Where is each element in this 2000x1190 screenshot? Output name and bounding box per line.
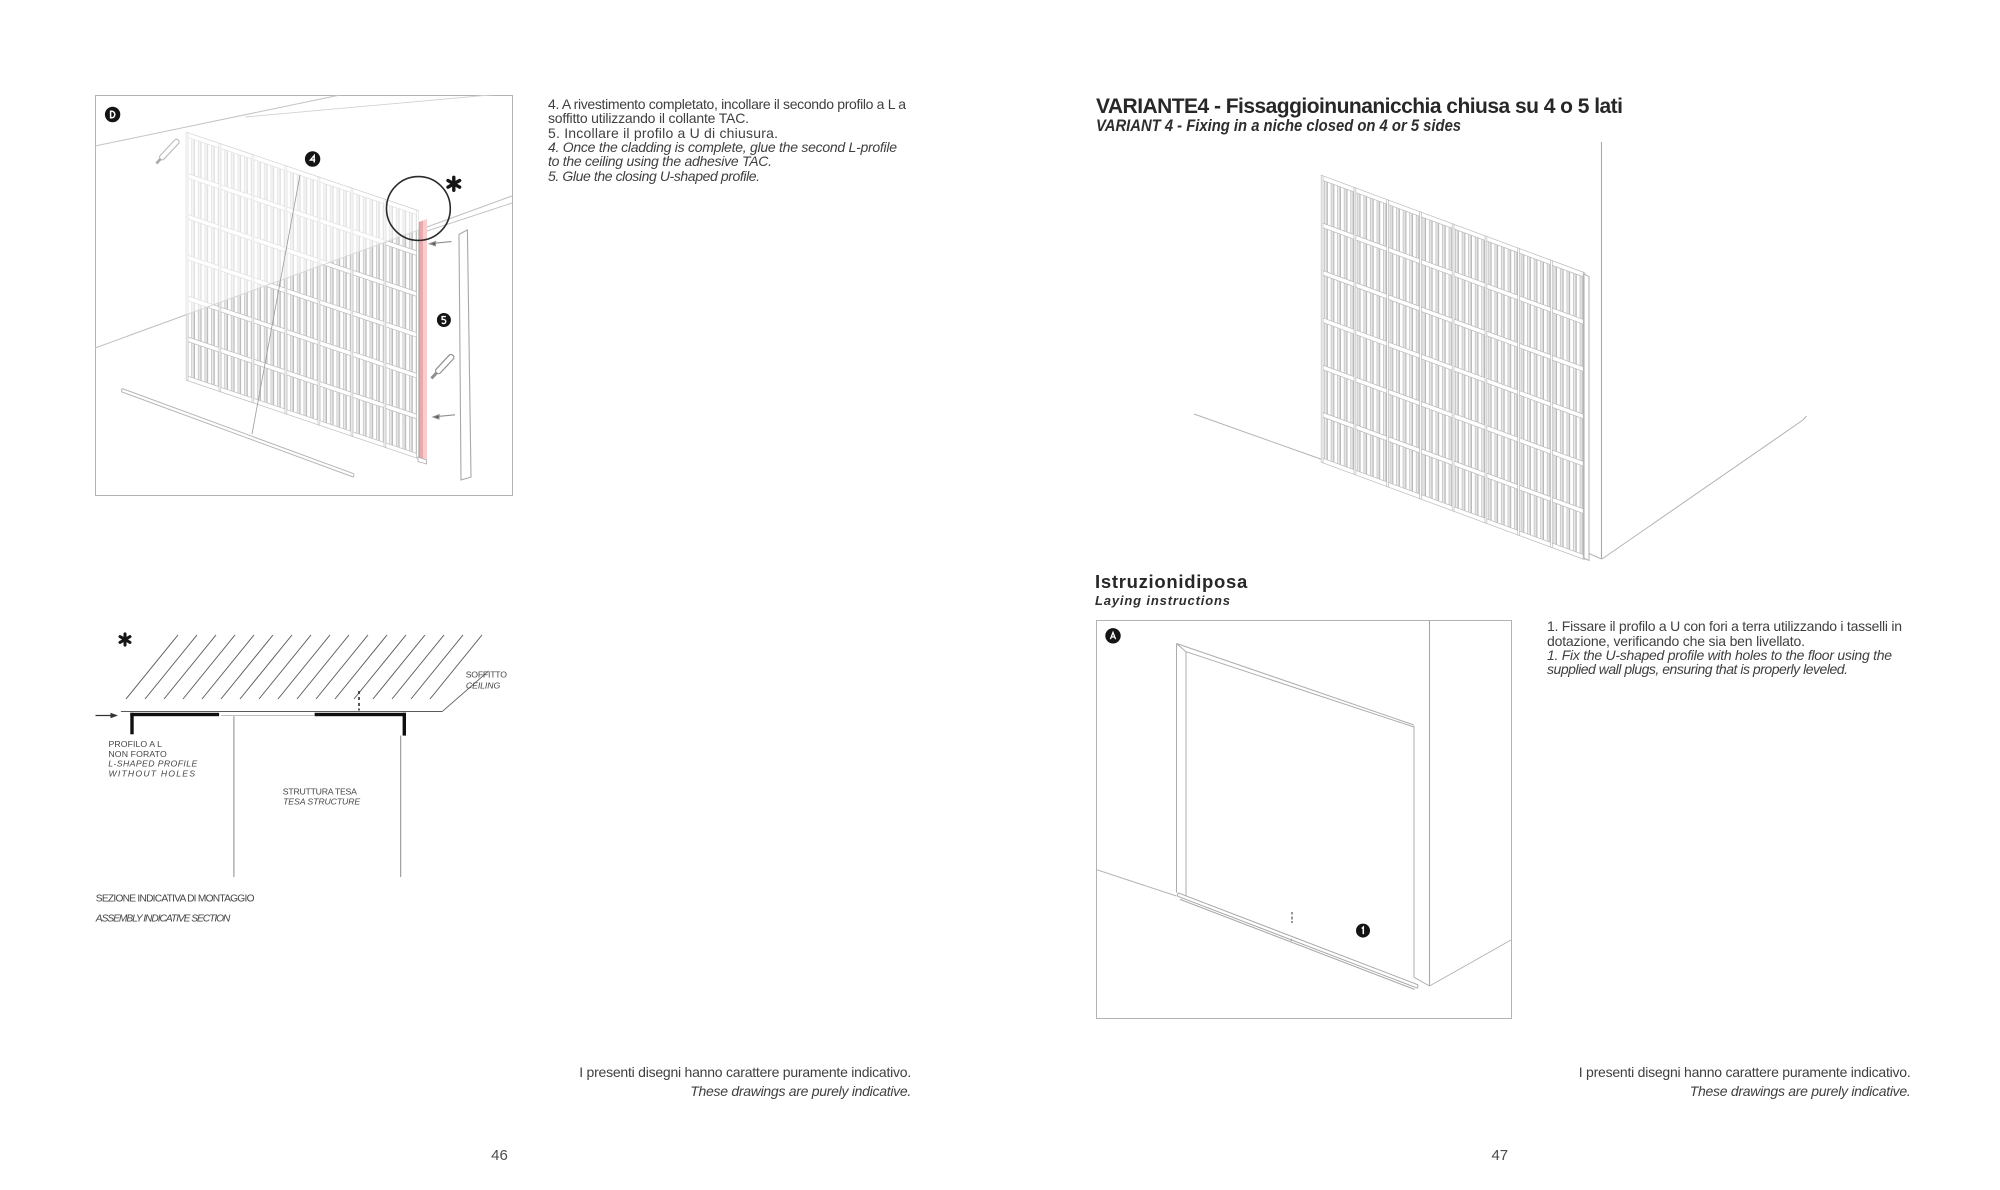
svg-text:CEILING: CEILING [466,680,501,690]
svg-text:ASSEMBLY INDICATIVE SECTION: ASSEMBLY INDICATIVE SECTION [95,914,231,925]
svg-text:L-SHAPED PROFILE: L-SHAPED PROFILE [108,758,197,768]
svg-text:SEZIONE INDICATIVA DI MONTAGGI: SEZIONE INDICATIVA DI MONTAGGIO [96,893,255,904]
svg-text:WITHOUT HOLES: WITHOUT HOLES [109,769,196,779]
svg-text:TESA STRUCTURE: TESA STRUCTURE [283,797,360,807]
svg-text:SOFFITTO: SOFFITTO [466,670,508,680]
svg-text:STRUTTURA TESA: STRUTTURA TESA [283,786,357,796]
svg-text:PROFILO A L: PROFILO A L [109,739,163,749]
